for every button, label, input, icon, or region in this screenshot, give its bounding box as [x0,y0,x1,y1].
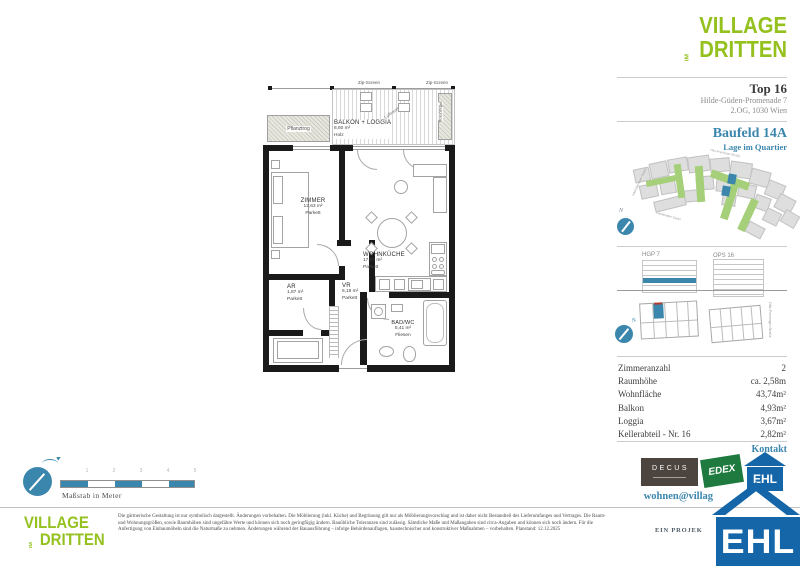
keyplan-entry-mark [654,302,662,304]
wall-segment [449,145,455,372]
wall-segment [263,145,293,151]
compass-north-swash [42,459,58,469]
wall-segment [263,145,269,372]
scale-segment [169,481,194,487]
balcony-chair [360,92,372,101]
floor-plan: Zip-Screen Zip-Screen Pflanztrog Pflanzt… [263,80,459,374]
room-label-ar: AR 1,87 m² Parkett [287,284,303,303]
dining-table [377,218,407,248]
pillow [273,216,283,244]
ehl-logo-large-box: EHL [716,517,800,566]
stove-burner [439,264,444,269]
ehl-logo-large-roof [712,482,800,515]
kitchen-appliance [379,279,390,290]
oven-door [411,280,423,289]
divider [617,121,787,122]
dishwasher [433,279,444,290]
window-line [293,146,330,147]
brand-line2: IMDRITTEN [658,37,787,61]
ehl-logo-roof [744,452,786,466]
scale-caption: Maßstab in Meter [62,491,122,500]
row-label: Loggia [618,415,644,428]
row-label: Zimmeranzahl [618,362,670,375]
row-value: 43,74m² [756,388,786,401]
room-label-zimmer: ZIMMER 12,63 m² Parkett [287,198,339,217]
project-note: EIN PROJEK [655,527,703,534]
sofa [433,177,447,213]
wall-segment [367,365,455,372]
site-map: Otto-Preminger-Straße Adolf-Blamauer-Gas… [626,150,790,246]
chair [405,211,418,224]
planter-left-label: Pflanztrog [286,126,311,132]
bathtub-inner [426,303,444,343]
room-label-wohnkueche: WOHNKÜCHE 17,47 m² Parkett [363,252,405,271]
table-row: Kellerabteil - Nr. 162,82m² [618,428,786,441]
decus-logo: DECUS [641,458,698,486]
brand-line1: VILLAGE [658,13,787,37]
toilet [403,346,416,362]
row-value: 2 [782,362,787,375]
address-floor-city: 2.OG, 1030 Wien [617,106,787,116]
planter-right-label: Pflanztrog [438,102,443,122]
compass-needle [621,221,630,232]
door-arc-ar [303,308,321,330]
kitchen-appliance [431,244,445,254]
elevation-right [713,259,764,297]
sofa [413,164,447,177]
decus-logo-text: DECUS [641,458,698,472]
compass-icon [617,218,634,235]
chair [405,242,418,255]
washing-machine-drum [374,307,383,316]
door-arc-entry [341,339,367,365]
scale-segment [115,481,142,487]
keyplan-street-label: Otto-Preminger-Straße [768,302,772,338]
scale-number: 3 [135,468,147,474]
row-label: Raumhöhe [618,375,657,388]
wall-segment [445,145,455,151]
nightstand [271,250,280,259]
row-value: 3,67m² [761,415,786,428]
door-arc-zimmer [317,244,339,266]
nightstand [271,160,280,169]
dimension-tick [268,86,272,90]
stove-burner [439,257,444,262]
window-line [293,149,330,150]
scale-number: 2 [108,468,120,474]
brand-logo-bottom: VILLAGE IMDRITTEN [24,514,116,548]
keyplan-left [639,301,699,340]
unit-address: Hilde-Güden-Promenade 7 2.OG, 1030 Wien [617,96,787,116]
scale-segment [61,481,88,487]
chair [365,211,378,224]
elevation-left [642,260,697,293]
scale-bar [60,480,195,488]
compass-needle [29,473,45,491]
balcony-chair [398,92,410,101]
divider [617,77,787,78]
table-row: Balkon4,93m² [618,402,786,415]
compass-icon-large [23,467,52,496]
washbasin [379,346,394,357]
decus-logo-line [653,477,686,478]
planter-right: Pflanztrog [438,93,452,140]
balcony-chair [360,103,372,112]
planter-left: Pflanztrog [267,115,330,142]
map-highlight-building [727,173,737,184]
room-label-vr: VR 6,18 m² Parkett [342,283,362,302]
brand-im: IM [677,54,698,61]
north-label: N [619,208,623,214]
row-value: ca. 2,58m [751,375,786,388]
balcony-chair [398,103,410,112]
table-row: Raumhöheca. 2,58m [618,375,786,388]
row-label: Balkon [618,402,644,415]
door-arc [357,150,377,170]
floorplan-page: Zip-Screen Zip-Screen Pflanztrog Pflanzt… [0,0,800,566]
highlighted-floor [643,278,696,283]
pillow [273,176,283,204]
compass-needle [619,328,629,340]
keyplan-right [709,305,764,343]
compass-north-glyph: N [631,318,636,325]
kitchen-sink [431,270,445,275]
ehl-logo-large: EHL [712,480,800,566]
scale-segment [142,481,169,487]
bath-shelf [391,304,403,312]
scale-number: 4 [162,468,174,474]
disclaimer-text: Die gärtnerische Gestaltung ist nur symb… [118,514,612,534]
brand-line2: IMDRITTEN [24,531,105,548]
room-label-bad: BAD/WC 5,41 m² Fliesen [385,320,421,339]
wall-segment [339,266,345,274]
baufeld-title: Baufeld 14A [617,126,787,142]
scale-number: 5 [189,468,201,474]
scale-number: 1 [81,468,93,474]
keyplan-line [711,323,761,328]
ehl-logo-large-text: EHL [714,517,800,566]
address-street: Hilde-Güden-Promenade 7 [617,96,787,106]
brand-logo-top: VILLAGE IMDRITTEN [640,13,787,61]
map-street-bottom: Landstraßer Gürtel [656,211,681,222]
brand-line1: VILLAGE [24,514,105,531]
footer-divider [0,507,800,508]
entry-threshold [339,368,367,369]
scale-segment [88,481,115,487]
row-value: 2,82m² [761,428,786,441]
divider [617,356,787,357]
compass-icon [615,325,633,343]
wall-segment [339,151,345,244]
divider [617,441,787,442]
ground-line [617,290,787,291]
table-row: Loggia3,67m² [618,415,786,428]
compass-arrowhead [56,455,61,460]
glass-front-line [353,146,445,147]
elevation-left-label: HGP 7 [642,252,660,258]
table-row: Wohnfläche43,74m² [618,388,786,401]
zip-screen-label: Zip-Screen [349,80,389,85]
row-value: 4,93m² [761,402,786,415]
wall-segment [263,330,303,336]
stove-burner [432,257,437,262]
table-row: Zimmeranzahl2 [618,362,786,375]
row-label: Wohnfläche [618,388,661,401]
row-label: Kellerabteil - Nr. 16 [618,428,690,441]
brand-im: IM [24,542,39,548]
unit-title: Top 16 [617,81,787,97]
balcony-label: BALKON + LOGGIA 8,60 m² Holz [334,120,391,139]
zip-screen-label: Zip-Screen [417,80,457,85]
details-table: Zimmeranzahl2 Raumhöheca. 2,58m Wohnfläc… [618,362,786,441]
contact-email[interactable]: wohnen@villag [617,491,713,502]
stair-shaft [329,306,339,358]
elevator-cab [277,341,319,359]
wall-segment [337,240,351,246]
wall-segment [389,292,449,298]
kitchen-appliance [394,279,405,290]
keyplan-highlight-unit [653,303,664,319]
map-highlight-building [721,185,731,196]
coffee-table [394,180,408,194]
stove-burner [432,264,437,269]
wall-segment [263,365,339,372]
divider [617,246,787,247]
